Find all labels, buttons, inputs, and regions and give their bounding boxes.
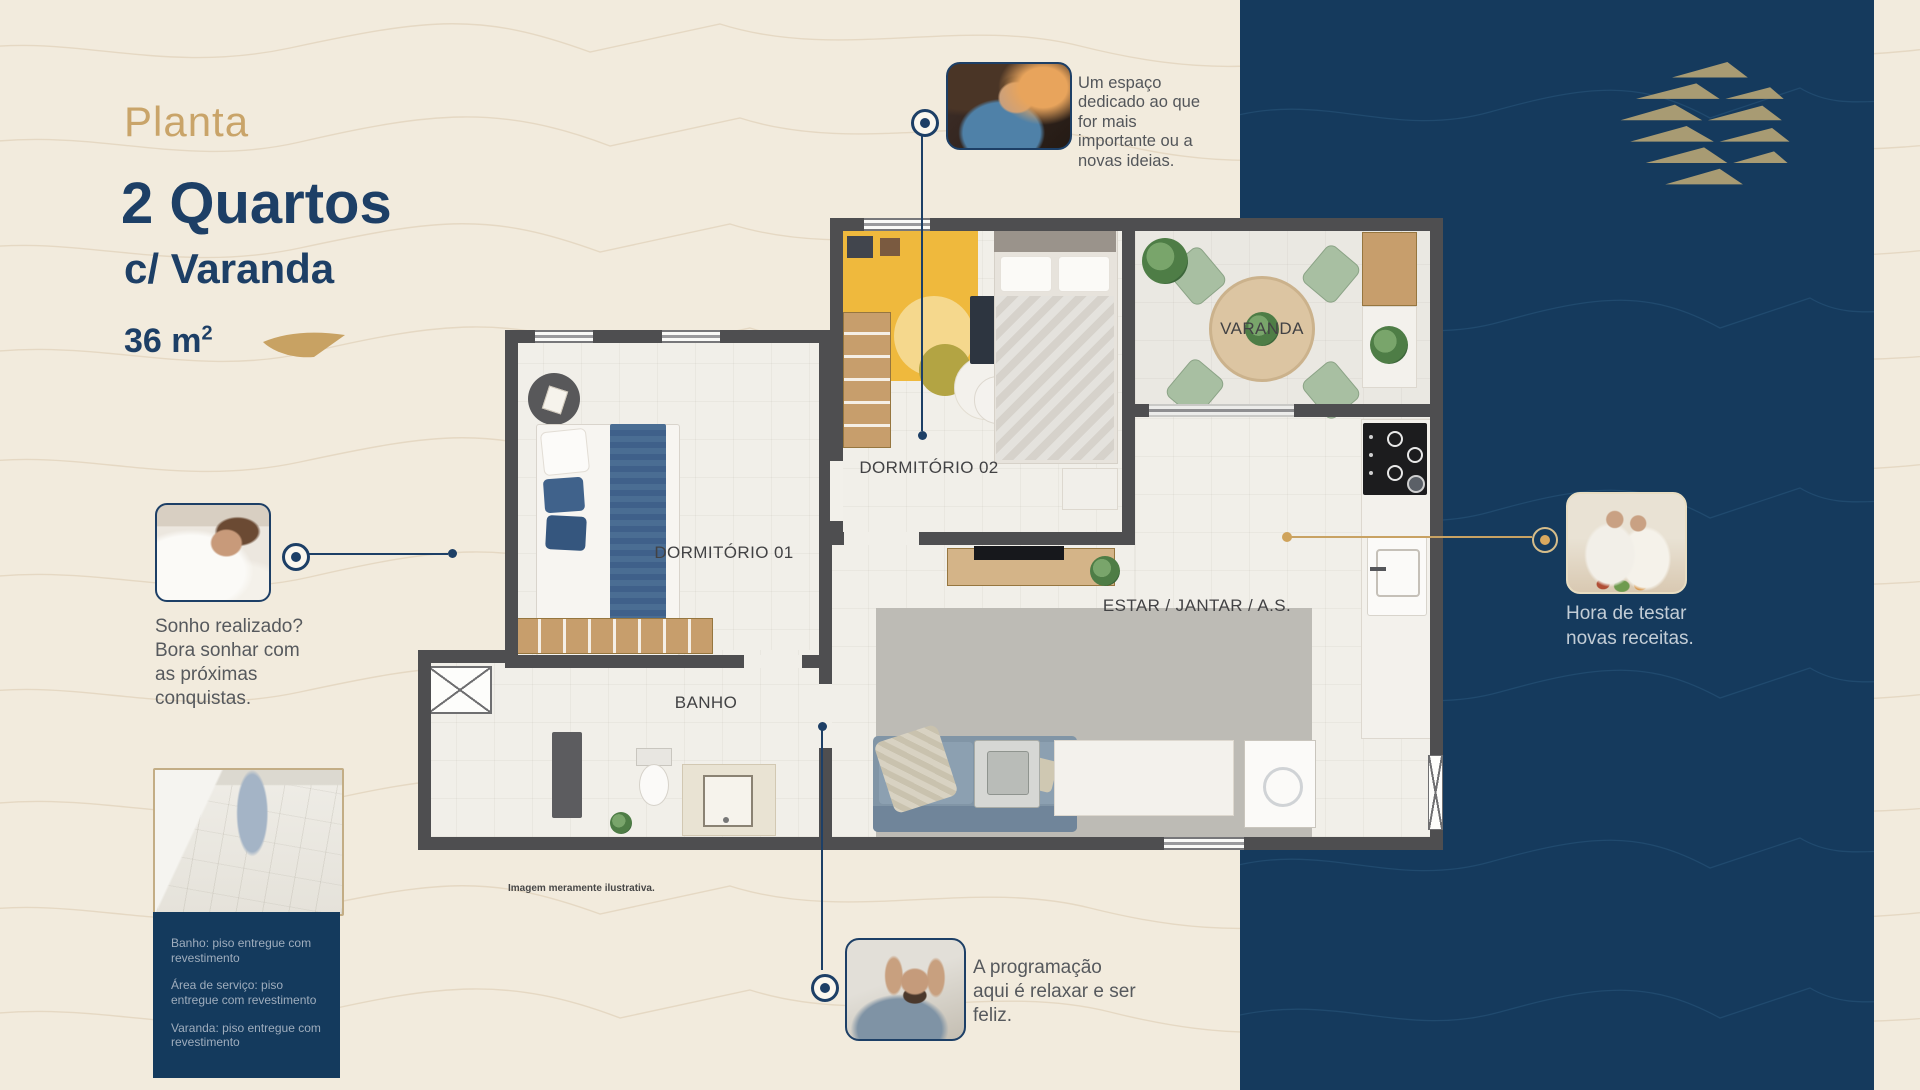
- wardrobe-dorm02: [843, 312, 891, 448]
- callout-marker-living: [811, 974, 839, 1002]
- door-opening: [744, 655, 802, 668]
- shelf-items-2: [880, 238, 900, 256]
- plan-disclaimer: Imagem meramente ilustrativa.: [508, 883, 655, 894]
- door-opening: [830, 461, 843, 521]
- photo-woman-resting-in-bed: [155, 503, 271, 602]
- sink-basin: [1376, 549, 1420, 597]
- brand-logo: [1617, 60, 1795, 196]
- cooktop-knob: [1369, 471, 1373, 475]
- pillow-dorm02-left: [1000, 256, 1052, 292]
- finish-item-varanda: Varanda: piso entregue com revestimento: [171, 1021, 322, 1050]
- counter-plant: [1370, 326, 1408, 364]
- window: [662, 330, 720, 343]
- callout-endpoint-living: [818, 722, 827, 731]
- callout-line-living: [821, 730, 823, 970]
- cooktop-knob: [1369, 435, 1373, 439]
- door-opening: [844, 532, 919, 545]
- callout-marker-office: [911, 109, 939, 137]
- callout-marker-kitchen: [1532, 527, 1558, 553]
- finish-item-area-servico: Área de serviço: piso entregue com reves…: [171, 978, 322, 1007]
- varanda-plant: [1142, 238, 1188, 284]
- finishes-note-box: Banho: piso entregue com revestimento Ár…: [153, 912, 340, 1078]
- sink-faucet: [1370, 567, 1386, 571]
- shower-box: [428, 666, 492, 714]
- gold-swoosh-icon: [262, 330, 346, 360]
- utility-shaft: [1428, 755, 1443, 830]
- finish-item-banho: Banho: piso entregue com revestimento: [171, 936, 322, 965]
- callout-text-office: Um espaço dedicado ao que for mais impor…: [1078, 74, 1218, 171]
- wall: [1122, 218, 1135, 545]
- burner: [1407, 475, 1425, 493]
- cooktop-knob: [1369, 453, 1373, 457]
- washing-machine: [1244, 740, 1316, 828]
- room-label-banho: BANHO: [651, 693, 761, 713]
- photo-man-working-at-laptop: [946, 62, 1072, 150]
- room-label-varanda: VARANDA: [1209, 319, 1315, 339]
- banho-cabinet: [552, 732, 582, 818]
- burner: [1387, 431, 1403, 447]
- callout-text-bedroom: Sonho realizado? Bora sonhar com as próx…: [155, 615, 315, 711]
- laundry-counter: [1054, 740, 1234, 816]
- bed-blanket: [996, 296, 1114, 460]
- bed-foot-bench: [1062, 468, 1118, 510]
- room-label-estar: ESTAR / JANTAR / A.S.: [1097, 596, 1297, 616]
- callout-line-kitchen: [1290, 536, 1532, 538]
- wall: [418, 837, 1443, 850]
- banho-plant: [610, 812, 632, 834]
- room-label-dormitorio-02: DORMITÓRIO 02: [844, 458, 1014, 478]
- tv: [974, 546, 1064, 560]
- floor-plan: DORMITÓRIO 01 DORMITÓRIO 02 BANHO ESTAR …: [414, 216, 1447, 852]
- window: [1164, 837, 1244, 850]
- pillow-dorm02-right: [1058, 256, 1110, 292]
- wall: [1135, 218, 1430, 231]
- area-sup: 2: [202, 323, 213, 345]
- callout-endpoint-office: [918, 431, 927, 440]
- wall: [418, 650, 431, 850]
- cooktop: [1363, 423, 1427, 495]
- callout-endpoint-kitchen: [1282, 532, 1292, 542]
- washer-door: [1263, 767, 1303, 807]
- wall: [418, 650, 505, 663]
- plan-area: 36 m2: [124, 322, 213, 361]
- varanda-cabinet: [1362, 232, 1417, 306]
- callout-line-bedroom: [306, 553, 448, 555]
- kitchen-sink: [1367, 536, 1427, 616]
- wardrobe-dorm01: [515, 618, 713, 654]
- shelf-items: [847, 236, 873, 258]
- bed-pillow-white: [540, 428, 590, 477]
- callout-text-living: A programação aqui é relaxar e ser feliz…: [973, 956, 1143, 1028]
- plan-subtitle: c/ Varanda: [124, 245, 334, 293]
- wall: [505, 330, 518, 668]
- callout-text-kitchen: Hora de testar novas receitas.: [1566, 602, 1736, 651]
- brochure-page: Planta 2 Quartos c/ Varanda 36 m2: [0, 0, 1920, 1090]
- area-value: 36 m: [124, 322, 202, 360]
- window: [535, 330, 593, 343]
- photo-couple-cooking-together: [1566, 492, 1687, 594]
- photo-delivered-bathroom-floor: [153, 768, 344, 916]
- burner: [1387, 465, 1403, 481]
- banho-counter: [682, 764, 776, 836]
- callout-line-office: [921, 131, 923, 431]
- room-label-dormitorio-01: DORMITÓRIO 01: [639, 543, 809, 563]
- tank-basin: [987, 751, 1029, 795]
- bed-pillow-blue-2: [545, 515, 587, 551]
- toilet-bowl: [639, 764, 669, 806]
- plan-eyebrow: Planta: [124, 98, 249, 146]
- bed-pillow-blue: [543, 477, 585, 514]
- bed-headboard: [994, 230, 1116, 252]
- laundry-tank-sink: [974, 740, 1040, 808]
- sliding-glass-door: [1149, 404, 1294, 417]
- plan-title: 2 Quartos: [121, 170, 392, 237]
- sideboard-plant: [1090, 556, 1120, 586]
- callout-marker-bedroom: [282, 543, 310, 571]
- photo-man-relaxing-on-sofa: [845, 938, 966, 1041]
- callout-endpoint-bedroom: [448, 549, 457, 558]
- burner: [1407, 447, 1423, 463]
- banho-faucet: [723, 817, 729, 823]
